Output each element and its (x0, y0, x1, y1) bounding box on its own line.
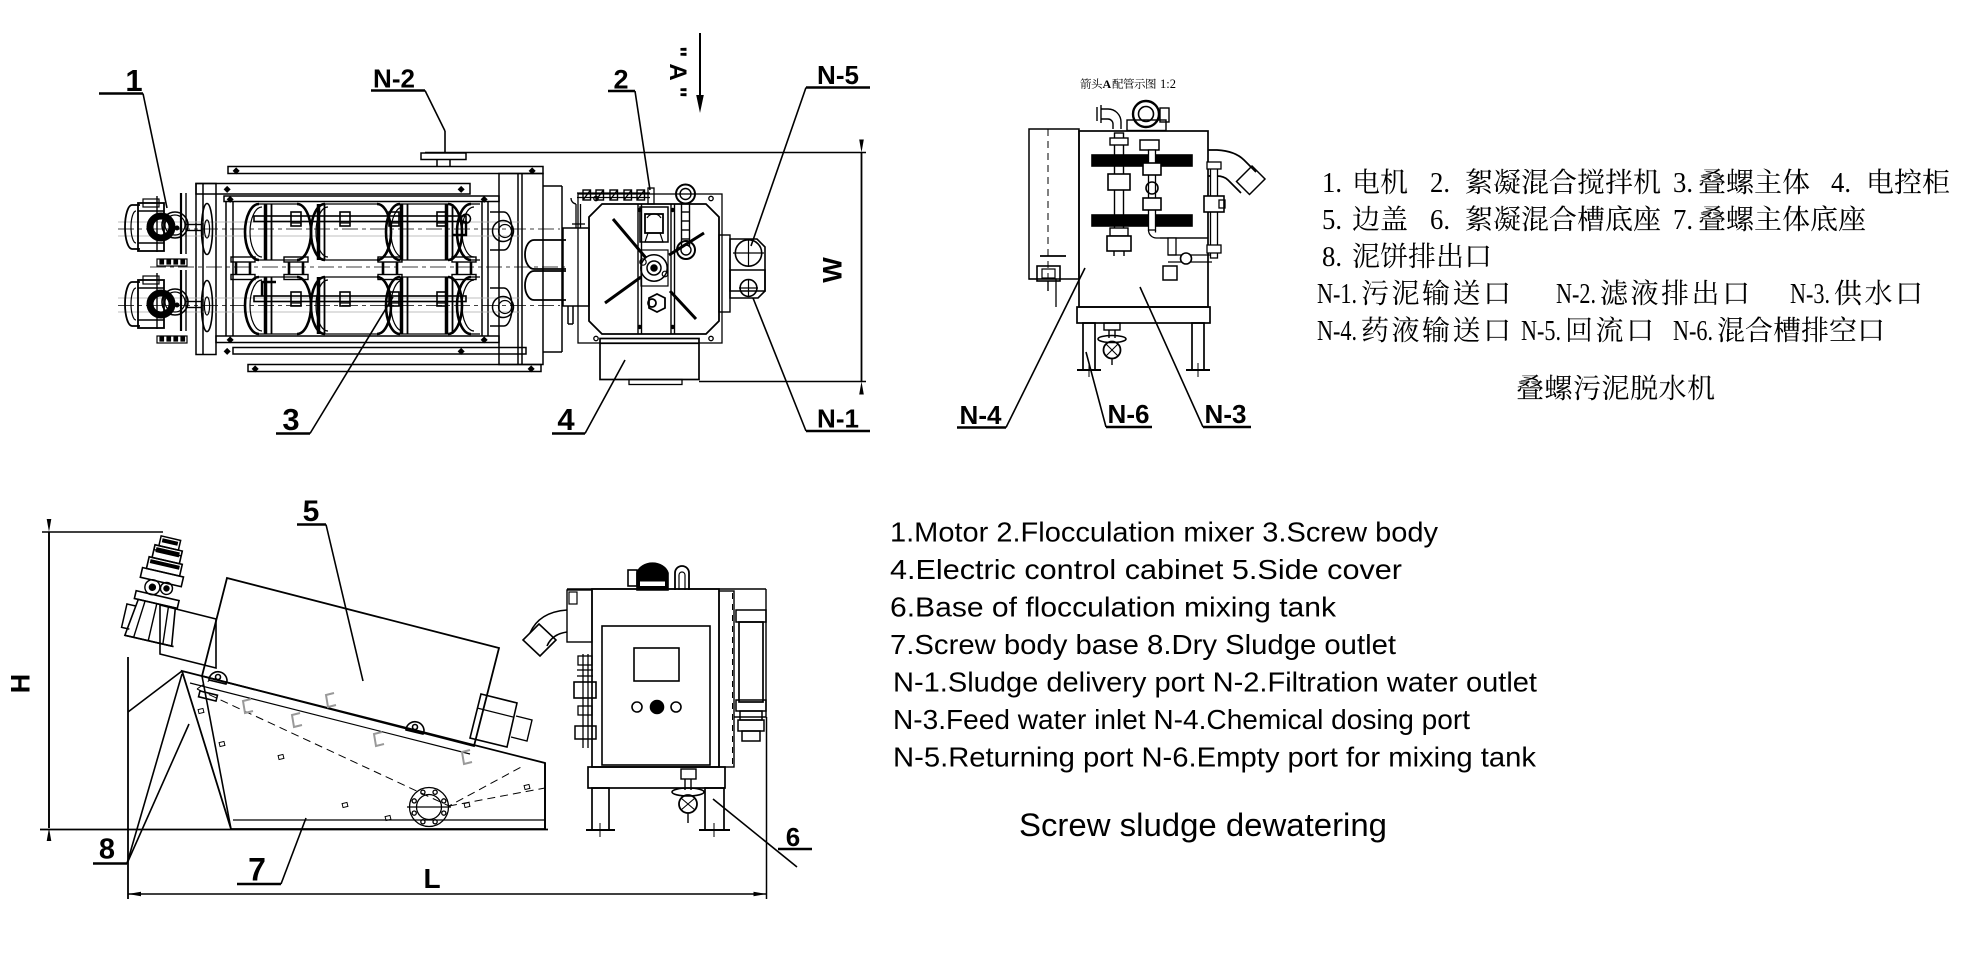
svg-text:N-3.Feed water inlet N-4.Chemi: N-3.Feed water inlet N-4.Chemical dosing… (893, 704, 1470, 735)
svg-text:N-1.: N-1. (1317, 279, 1357, 310)
svg-text:N-3.: N-3. (1790, 279, 1830, 310)
svg-text:6.Base of flocculation mixing: 6.Base of flocculation mixing tank (890, 592, 1337, 623)
svg-text:N-3: N-3 (1205, 399, 1247, 429)
svg-text:N-5: N-5 (817, 60, 859, 90)
svg-text:N-2.: N-2. (1556, 279, 1596, 310)
svg-text:N-5.: N-5. (1521, 316, 1561, 347)
svg-text:3: 3 (282, 402, 299, 437)
svg-text:3.: 3. (1673, 168, 1693, 199)
svg-text:6.: 6. (1430, 205, 1450, 236)
svg-text:N-6: N-6 (1108, 399, 1150, 429)
svg-text:7: 7 (248, 852, 266, 888)
svg-text:H: H (6, 674, 36, 694)
svg-text:1.Motor 2.Flocculation mixer 3: 1.Motor 2.Flocculation mixer 3.Screw bod… (890, 517, 1438, 548)
svg-text:5: 5 (303, 495, 320, 528)
svg-text:7.Screw body base 8.Dry Sludge: 7.Screw body base 8.Dry Sludge outlet (890, 629, 1396, 660)
svg-text:1:2: 1:2 (1160, 77, 1176, 91)
svg-text:" A ": " A " (664, 46, 691, 98)
svg-text:A: A (1103, 77, 1112, 91)
svg-text:N-4: N-4 (960, 400, 1002, 430)
svg-text:N-2: N-2 (373, 64, 415, 94)
svg-text:6: 6 (786, 822, 800, 852)
svg-text:5.: 5. (1322, 205, 1342, 236)
svg-text:1: 1 (125, 63, 142, 98)
svg-text:N-1: N-1 (817, 404, 859, 434)
svg-text:2.: 2. (1430, 168, 1450, 199)
svg-text:N-6.: N-6. (1673, 316, 1713, 347)
svg-text:8.: 8. (1322, 242, 1342, 273)
svg-text:L: L (423, 863, 440, 894)
svg-text:W: W (818, 257, 848, 283)
svg-text:4.: 4. (1831, 168, 1851, 199)
svg-text:1.: 1. (1322, 168, 1342, 199)
svg-text:2: 2 (613, 65, 628, 95)
svg-text:N-1.Sludge delivery port N-2.F: N-1.Sludge delivery port N-2.Filtration … (893, 667, 1537, 698)
svg-text:4: 4 (557, 402, 575, 437)
svg-text:4.Electric control cabinet 5.S: 4.Electric control cabinet 5.Side cover (890, 554, 1402, 585)
svg-text:8: 8 (99, 834, 115, 866)
svg-text:7.: 7. (1673, 205, 1693, 236)
svg-text:N-4.: N-4. (1317, 316, 1357, 347)
svg-text:N-5.Returning port N-6.Empty p: N-5.Returning port N-6.Empty port for mi… (893, 742, 1537, 773)
svg-text:Screw sludge dewatering: Screw sludge dewatering (1019, 807, 1387, 843)
